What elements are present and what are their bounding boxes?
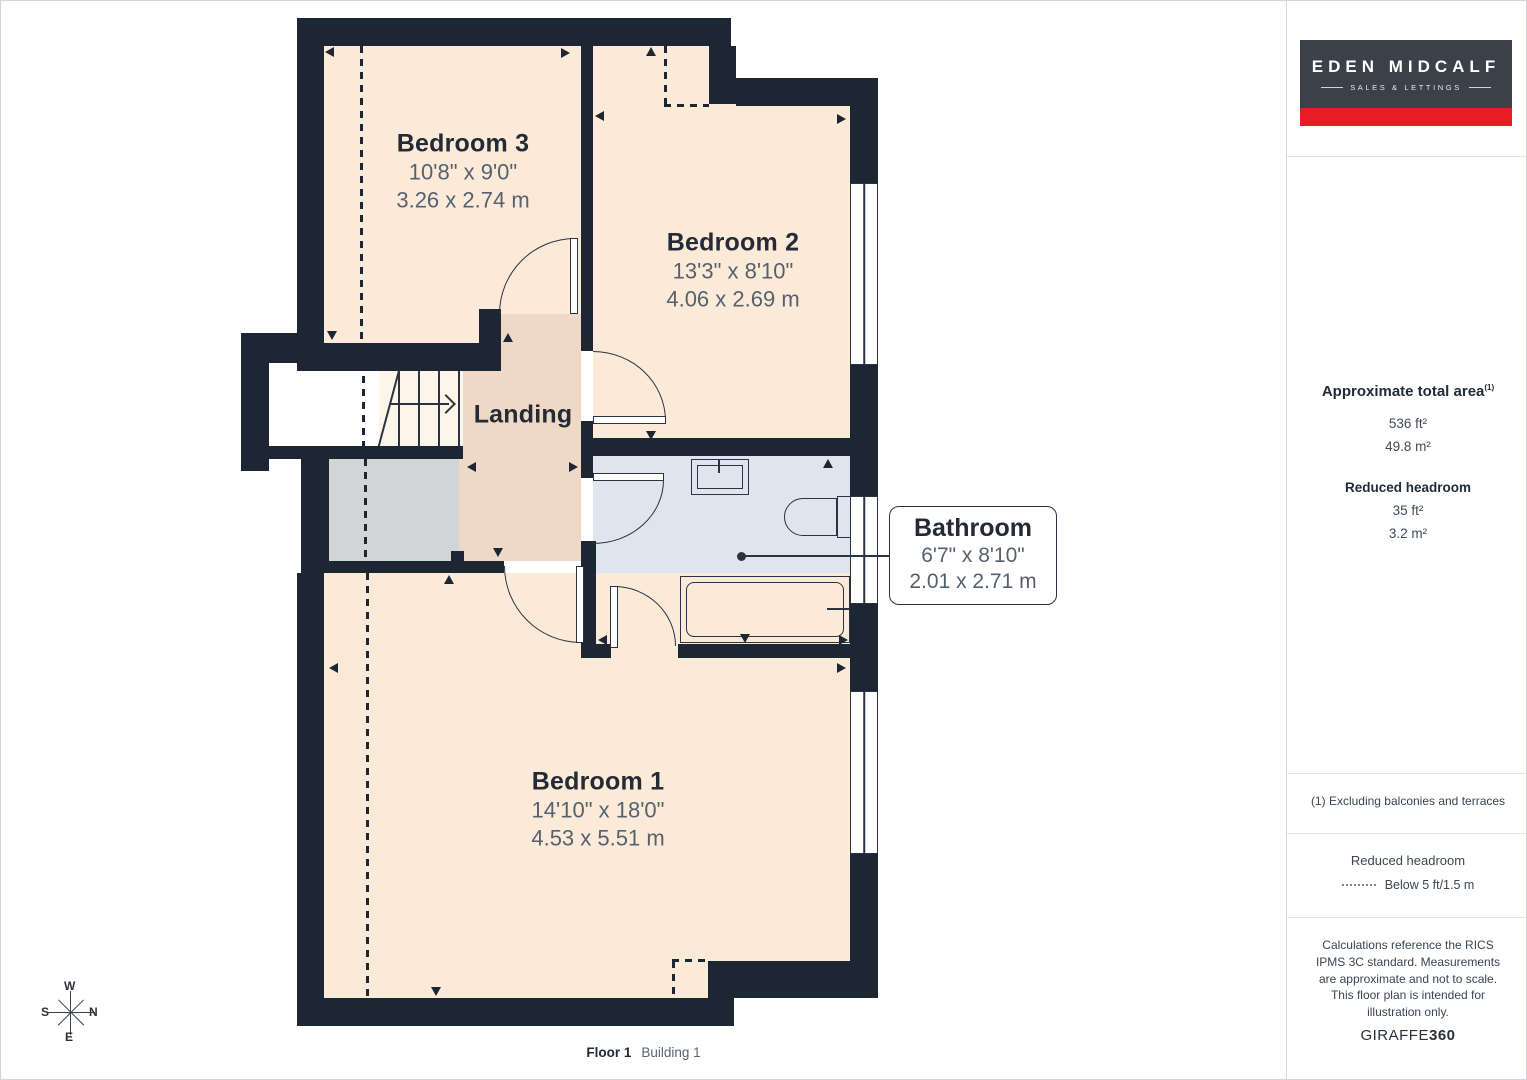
wall: [593, 438, 850, 456]
info-sidebar: EDEN MIDCALF SALES & LETTINGS Approximat…: [1286, 1, 1527, 1080]
bathtub-tap-line: [827, 608, 850, 610]
opening-arrow-icon: [561, 48, 570, 58]
reduced-headroom-dashed-line: [664, 104, 709, 107]
sidebar-divider: [1287, 773, 1527, 774]
reduced-headroom-metric: 3.2 m²: [1287, 526, 1527, 541]
wall: [297, 343, 501, 371]
door-leaf: [593, 416, 666, 424]
area-summary: Approximate total area(1) 536 ft² 49.8 m…: [1287, 383, 1527, 541]
reduced-headroom-dashed-line: [364, 459, 367, 561]
reduced-headroom-imperial: 35 ft²: [1287, 503, 1527, 518]
room-dims-imperial: 14'10" x 18'0": [531, 797, 664, 825]
reduced-headroom-dashed-line: [360, 46, 363, 343]
opening-arrow-icon: [740, 634, 750, 643]
wall: [581, 46, 593, 351]
opening-arrow-icon: [444, 575, 454, 584]
balconies-footnote: (1) Excluding balconies and terraces: [1287, 794, 1527, 808]
sidebar-divider: [1287, 156, 1527, 157]
window: [850, 691, 878, 854]
opening-arrow-icon: [329, 663, 338, 673]
building-label: Building 1: [641, 1045, 700, 1060]
door-leaf: [576, 566, 584, 643]
sink-tap-icon: [718, 459, 720, 473]
wall: [297, 18, 324, 371]
total-area-imperial: 536 ft²: [1287, 416, 1527, 431]
sidebar-divider: [1287, 917, 1527, 918]
toilet-icon: [784, 498, 837, 536]
room-dims-metric: 4.06 x 2.69 m: [666, 286, 799, 314]
wall: [850, 104, 878, 183]
legend-label: Below 5 ft/1.5 m: [1385, 878, 1475, 892]
opening-arrow-icon: [325, 47, 334, 57]
callout-leader-line: [745, 555, 889, 557]
window: [850, 496, 878, 604]
disclaimer-text: Calculations reference the RICS IPMS 3C …: [1308, 937, 1508, 1021]
total-area-metric: 49.8 m²: [1287, 439, 1527, 454]
room-name: Bedroom 2: [666, 229, 799, 258]
wall: [451, 551, 464, 561]
room-landing: [459, 446, 581, 561]
reduced-headroom-dashed-line: [672, 959, 710, 962]
window-pane-line: [863, 692, 865, 853]
opening-arrow-icon: [569, 462, 578, 472]
room-dims-metric: 4.53 x 5.51 m: [531, 825, 664, 853]
opening-arrow-icon: [823, 459, 833, 468]
legend-title: Reduced headroom: [1287, 853, 1527, 868]
room-dims-imperial: 6'7" x 8'10": [890, 543, 1056, 569]
wall: [709, 46, 736, 104]
wall: [479, 309, 501, 349]
room-label-bedroom3: Bedroom 3 10'8" x 9'0" 3.26 x 2.74 m: [396, 130, 529, 215]
opening-arrow-icon: [839, 635, 848, 645]
opening-arrow-icon: [431, 987, 441, 996]
room-name: Bedroom 1: [531, 768, 664, 797]
door-leaf: [610, 586, 618, 648]
window-pane-line: [863, 497, 865, 603]
reduced-headroom-dashed-line: [366, 573, 369, 998]
reduced-headroom-dashed-line: [362, 363, 365, 446]
window-pane-line: [863, 184, 865, 364]
total-area-title-text: Approximate total area: [1322, 383, 1485, 400]
reduced-headroom-area: [329, 459, 459, 561]
reduced-headroom-dashed-line: [672, 961, 675, 998]
bathtub-inner-icon: [686, 582, 844, 637]
giraffe360-brand: GIRAFFE360: [1287, 1027, 1527, 1044]
room-label-bathroom: Bathroom 6'7" x 8'10" 2.01 x 2.71 m: [889, 506, 1057, 605]
opening-arrow-icon: [598, 635, 607, 645]
opening-arrow-icon: [242, 461, 252, 470]
wall: [301, 561, 504, 573]
opening-arrow-icon: [327, 331, 337, 340]
room-dims-imperial: 10'8" x 9'0": [396, 159, 529, 187]
compass-west-label: W: [64, 979, 75, 993]
compass-south-label: S: [41, 1005, 49, 1019]
agency-logo-red-bar: [1300, 108, 1512, 126]
room-dims-metric: 3.26 x 2.74 m: [396, 187, 529, 215]
opening-arrow-icon: [646, 431, 656, 440]
room-dims-imperial: 13'3" x 8'10": [666, 258, 799, 286]
door-leaf: [570, 238, 578, 314]
wall: [297, 998, 734, 1026]
agency-logo-panel: EDEN MIDCALF SALES & LETTINGS: [1300, 40, 1512, 108]
room-name: Landing: [474, 401, 573, 430]
wall: [736, 78, 878, 106]
room-label-bedroom2: Bedroom 2 13'3" x 8'10" 4.06 x 2.69 m: [666, 229, 799, 314]
floorplan-page: Bedroom 3 10'8" x 9'0" 3.26 x 2.74 m Bed…: [0, 0, 1527, 1080]
wall: [297, 573, 324, 998]
wall: [581, 644, 611, 658]
sidebar-divider: [1287, 833, 1527, 834]
floor-caption: Floor 1Building 1: [1, 1045, 1286, 1060]
room-name: Bedroom 3: [396, 130, 529, 159]
floor-label: Floor 1: [586, 1045, 631, 1060]
opening-arrow-icon: [467, 462, 476, 472]
opening-arrow-icon: [493, 548, 503, 557]
dashed-line-legend-icon: [1342, 884, 1376, 886]
toilet-cistern-icon: [837, 496, 851, 538]
wall: [297, 18, 731, 46]
opening-arrow-icon: [503, 333, 513, 342]
opening-arrow-icon: [595, 111, 604, 121]
total-area-title: Approximate total area(1): [1287, 383, 1527, 400]
agency-logo: EDEN MIDCALF SALES & LETTINGS: [1300, 40, 1512, 126]
opening-arrow-icon: [837, 114, 846, 124]
wall: [678, 644, 850, 658]
wall: [301, 459, 329, 573]
wall: [241, 446, 463, 459]
sink-basin-icon: [697, 465, 743, 489]
floorplan-canvas: Bedroom 3 10'8" x 9'0" 3.26 x 2.74 m Bed…: [1, 1, 1286, 1080]
callout-dot: [737, 552, 746, 561]
reduced-headroom-dashed-line: [664, 46, 667, 107]
window: [850, 183, 878, 365]
wall: [850, 604, 878, 691]
compass-north-label: N: [89, 1005, 98, 1019]
room-label-bedroom1: Bedroom 1 14'10" x 18'0" 4.53 x 5.51 m: [531, 768, 664, 853]
compass-east-label: E: [65, 1030, 73, 1044]
door-leaf: [593, 473, 664, 481]
agency-tagline: SALES & LETTINGS: [1350, 83, 1462, 92]
wall: [708, 961, 878, 998]
total-area-footnote-marker: (1): [1484, 383, 1494, 392]
room-name: Bathroom: [890, 514, 1056, 543]
brand-name: GIRAFFE: [1360, 1027, 1429, 1044]
room-landing-top: [501, 314, 581, 363]
legend-row: Below 5 ft/1.5 m: [1287, 878, 1527, 892]
tagline-rule-right: [1469, 87, 1491, 88]
room-label-landing: Landing: [474, 401, 573, 430]
wall: [850, 365, 878, 496]
stair-tread: [458, 363, 460, 446]
room-dims-metric: 2.01 x 2.71 m: [890, 569, 1056, 595]
wall: [241, 333, 324, 363]
agency-name: EDEN MIDCALF: [1300, 57, 1512, 77]
agency-tagline-row: SALES & LETTINGS: [1300, 83, 1512, 92]
tagline-rule-left: [1321, 87, 1343, 88]
opening-arrow-icon: [646, 47, 656, 56]
wall: [581, 421, 593, 478]
brand-suffix: 360: [1429, 1027, 1456, 1044]
reduced-headroom-title: Reduced headroom: [1287, 480, 1527, 495]
opening-arrow-icon: [837, 663, 846, 673]
